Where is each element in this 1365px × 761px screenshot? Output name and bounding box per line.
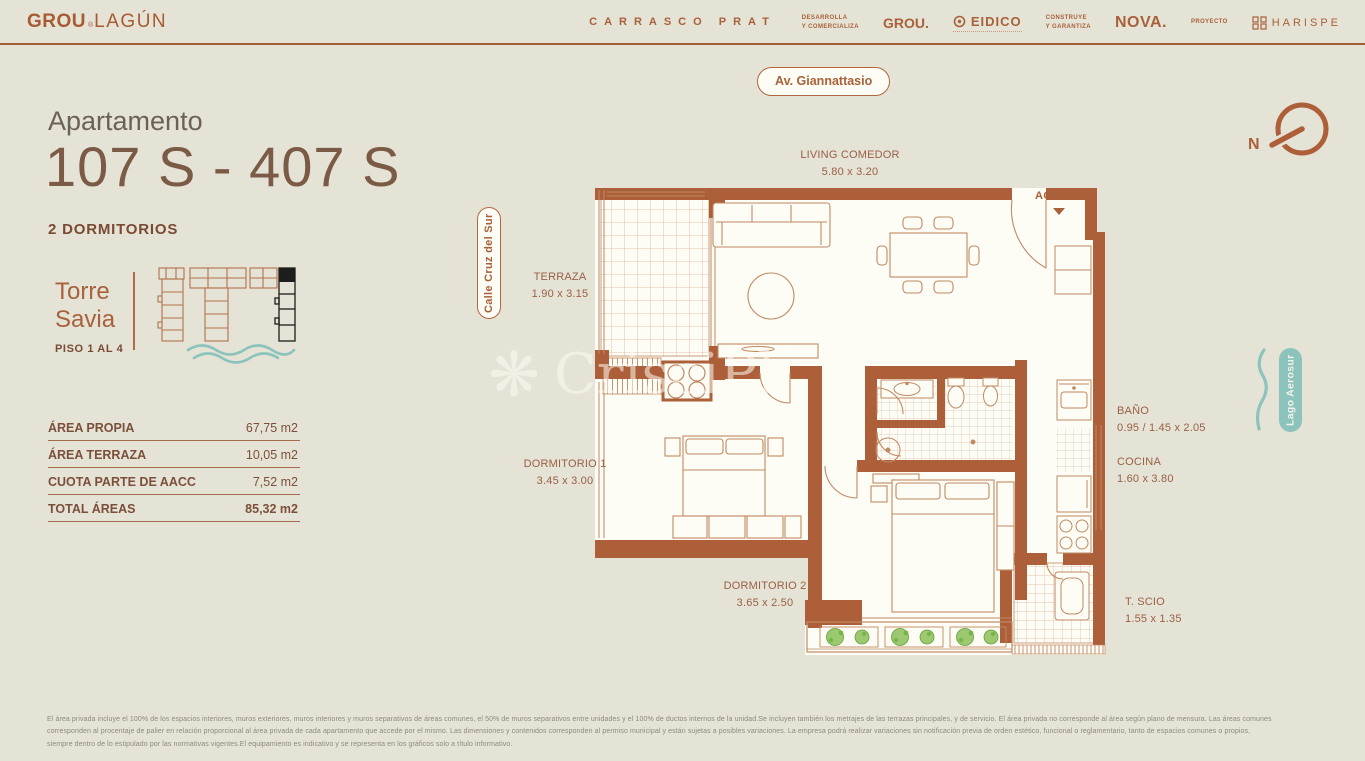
room-dims: 1.55 x 1.35: [1125, 611, 1235, 628]
bedrooms-count: 2 DORMITORIOS: [48, 221, 178, 238]
eidico-ring-icon: [953, 15, 966, 28]
room-label-dormitorio1: DORMITORIO 1 3.45 x 3.00: [505, 456, 625, 489]
site-mini-map: [146, 262, 298, 364]
partner-logos: DESARROLLA Y COMERCIALIZA GROU. EIDICO C…: [802, 0, 1341, 45]
architect-logo-harispe: HARISPE: [1252, 16, 1341, 30]
room-name: DORMITORIO 2: [700, 578, 830, 595]
brand-logo: GROU ® LAGÚN: [27, 11, 167, 33]
room-name: COCINA: [1117, 454, 1227, 471]
street-badge-top: Av. Giannattasio: [757, 67, 890, 96]
room-dims: 1.60 x 3.80: [1117, 471, 1227, 488]
room-name: T. SCIO: [1125, 594, 1235, 611]
area-value: 85,32 m2: [245, 502, 298, 516]
room-name: DORMITORIO 1: [505, 456, 625, 473]
eidico-text: EIDICO: [971, 14, 1022, 29]
north-compass-icon: N: [1238, 92, 1342, 172]
bedroom2-furniture: [871, 474, 1014, 612]
kitchen-counter-tiles: [1057, 428, 1091, 472]
floor-plan: [585, 170, 1120, 662]
table-row: ÁREA PROPIA 67,75 m2: [48, 414, 300, 441]
area-value: 7,52 m2: [253, 475, 298, 489]
brand-lagun: LAGÚN: [94, 11, 167, 33]
developer-logo-eidico: EIDICO: [953, 14, 1022, 32]
lake-wave-icon: [1250, 346, 1274, 434]
project-name: CARRASCO PRAT: [589, 16, 776, 28]
street-badge-left: Calle Cruz del Sur: [477, 207, 501, 319]
lake-badge: Lago Aerosur: [1279, 348, 1302, 432]
legal-disclaimer: El área privada incluye el 100% de los e…: [47, 714, 1339, 751]
areas-table: ÁREA PROPIA 67,75 m2 ÁREA TERRAZA 10,05 …: [48, 414, 300, 522]
room-dims: 1.90 x 3.15: [510, 286, 610, 303]
area-label: TOTAL ÁREAS: [48, 502, 136, 516]
architect-role-label: PROYECTO: [1191, 18, 1228, 26]
apartment-number: 107 S - 407 S: [45, 134, 400, 199]
room-name: LIVING COMEDOR: [780, 147, 920, 164]
grill: [663, 362, 711, 400]
tower-divider: [133, 272, 135, 350]
registered-mark-icon: ®: [88, 22, 93, 29]
table-row: CUOTA PARTE DE AACC 7,52 m2: [48, 468, 300, 495]
tower-floors: PISO 1 AL 4: [55, 343, 123, 355]
room-label-living: LIVING COMEDOR 5.80 x 3.20: [780, 147, 920, 180]
terrace-tiles: [601, 194, 709, 356]
table-row: ÁREA TERRAZA 10,05 m2: [48, 441, 300, 468]
highlighted-unit: [279, 268, 295, 282]
apartment-label: Apartamento: [48, 106, 203, 137]
builder-logo-nova: NOVA.: [1115, 14, 1167, 32]
room-label-bano: BAÑO 0.95 / 1.45 x 2.05: [1117, 403, 1247, 436]
tower-name: Torre Savia: [55, 278, 115, 333]
harispe-grid-icon: [1252, 16, 1267, 30]
access-label: ACCESO: [1030, 190, 1090, 202]
developer-role-label: DESARROLLA Y COMERCIALIZA: [802, 14, 859, 30]
brochure-page: GROU ® LAGÚN CARRASCO PRAT DESARROLLA Y …: [0, 0, 1365, 761]
water-waves: [188, 346, 294, 363]
harispe-text: HARISPE: [1272, 17, 1341, 29]
room-dims: 0.95 / 1.45 x 2.05: [1117, 420, 1247, 437]
service-terrace-hatch: [1012, 645, 1105, 654]
room-label-tscio: T. SCIO 1.55 x 1.35: [1125, 594, 1235, 627]
area-label: ÁREA PROPIA: [48, 421, 134, 435]
room-dims: 3.65 x 2.50: [700, 595, 830, 612]
room-dims: 5.80 x 3.20: [780, 164, 920, 181]
builder-role-label: CONSTRUYE Y GARANTIZA: [1046, 14, 1091, 30]
room-label-cocina: COCINA 1.60 x 3.80: [1117, 454, 1227, 487]
area-value: 10,05 m2: [246, 448, 298, 462]
compass-n-letter: N: [1248, 136, 1260, 153]
kitchen-appliances: [1055, 246, 1091, 553]
area-value: 67,75 m2: [246, 421, 298, 435]
table-row-total: TOTAL ÁREAS 85,32 m2: [48, 495, 300, 522]
developer-logo-grou: GROU.: [883, 15, 929, 31]
header-bar: GROU ® LAGÚN CARRASCO PRAT DESARROLLA Y …: [0, 0, 1365, 45]
brand-grou: GROU: [27, 11, 86, 33]
access-arrow-icon: [1053, 208, 1065, 215]
area-label: CUOTA PARTE DE AACC: [48, 475, 196, 489]
room-label-terraza: TERRAZA 1.90 x 3.15: [510, 269, 610, 302]
watermark-glyph-icon: ❋: [488, 338, 540, 411]
room-label-dormitorio2: DORMITORIO 2 3.65 x 2.50: [700, 578, 830, 611]
room-name: BAÑO: [1117, 403, 1247, 420]
room-dims: 3.45 x 3.00: [505, 473, 625, 490]
area-label: ÁREA TERRAZA: [48, 448, 146, 462]
room-name: TERRAZA: [510, 269, 610, 286]
